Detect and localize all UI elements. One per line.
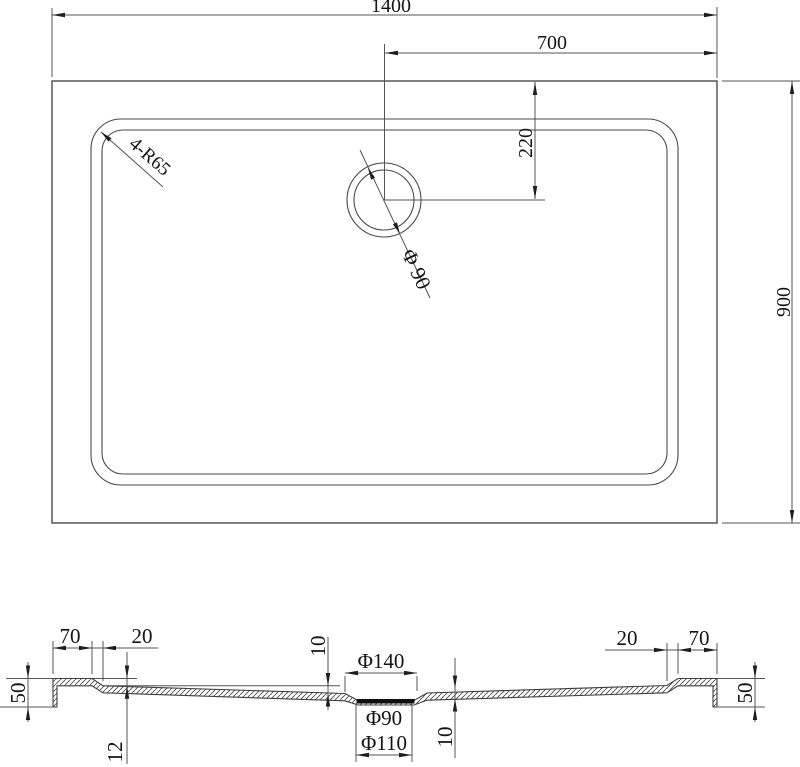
dim-label-overall-depth: 900 <box>773 287 795 317</box>
dim-drain-offset-x: 700 <box>385 32 717 55</box>
dim-drain-offset-y: 220 <box>515 82 537 199</box>
arrowhead <box>704 51 717 55</box>
arrowhead <box>79 646 92 650</box>
arrowhead <box>345 671 358 675</box>
arrowhead <box>453 699 457 712</box>
dim-label-right-step-width: 20 <box>617 626 638 650</box>
label-drain-diameter: Φ 90 <box>397 245 436 293</box>
label-corner-radius: 4-R65 <box>125 133 175 180</box>
dim-label-left-rim-width: 70 <box>60 624 81 648</box>
arrowhead <box>125 666 129 679</box>
dim-waste-hole-and-flange: Φ90 Φ110 <box>356 704 412 762</box>
arrowhead <box>326 673 330 686</box>
arrowhead <box>26 666 30 679</box>
arrowhead <box>103 646 116 650</box>
arrowhead <box>654 648 667 652</box>
technical-drawing: 1400 700 220 900 4-R6 <box>0 0 800 767</box>
dim-left-edge-height: 50 <box>6 662 30 722</box>
dim-right-rim-and-step: 20 70 <box>605 626 717 681</box>
dim-right-edge-height: 50 <box>733 662 757 722</box>
dim-label-floor-thickness-left: 10 <box>306 636 330 657</box>
dim-label-recess-diameter: Φ140 <box>358 649 405 673</box>
leader-corner-radius: 4-R65 <box>101 132 174 187</box>
arrowhead <box>533 186 537 199</box>
arrowhead <box>453 676 457 689</box>
dim-label-rim-step-depth: 12 <box>103 742 127 763</box>
dim-overall-depth: 900 <box>722 81 800 523</box>
dim-left-rim-and-step: 70 20 <box>53 624 158 681</box>
arrowhead <box>704 13 717 17</box>
drain-flange-bar <box>357 699 415 704</box>
dim-label-overall-width: 1400 <box>371 0 411 17</box>
dim-label-flange-diameter: Φ110 <box>361 731 407 755</box>
dim-label-right-edge-height: 50 <box>733 683 757 704</box>
dim-floor-thickness-right: 10 <box>433 658 457 758</box>
arrowhead <box>404 671 417 675</box>
arrowhead <box>385 51 398 55</box>
dim-label-left-step-width: 20 <box>132 624 153 648</box>
section-view: 50 70 20 12 10 <box>0 624 765 764</box>
dim-label-floor-thickness-right: 10 <box>433 727 457 748</box>
arrowhead <box>753 707 757 720</box>
dim-label-left-edge-height: 50 <box>6 683 30 704</box>
drawing-canvas: 1400 700 220 900 4-R6 <box>0 0 800 767</box>
dim-label-right-rim-width: 70 <box>689 626 710 650</box>
arrowhead <box>533 82 537 95</box>
dim-label-drain-offset-x: 700 <box>537 32 567 54</box>
dim-label-waste-hole-diameter: Φ90 <box>366 706 402 730</box>
arrowhead <box>26 707 30 720</box>
arrowhead <box>790 81 794 94</box>
arrowhead <box>753 666 757 679</box>
dim-recess-diameter: Φ140 <box>345 649 417 692</box>
dim-rim-step-depth: 12 <box>103 652 129 764</box>
arrowhead <box>790 510 794 523</box>
top-view: 1400 700 220 900 4-R6 <box>52 0 800 523</box>
arrowhead <box>52 13 65 17</box>
dim-label-drain-offset-y: 220 <box>515 128 537 158</box>
